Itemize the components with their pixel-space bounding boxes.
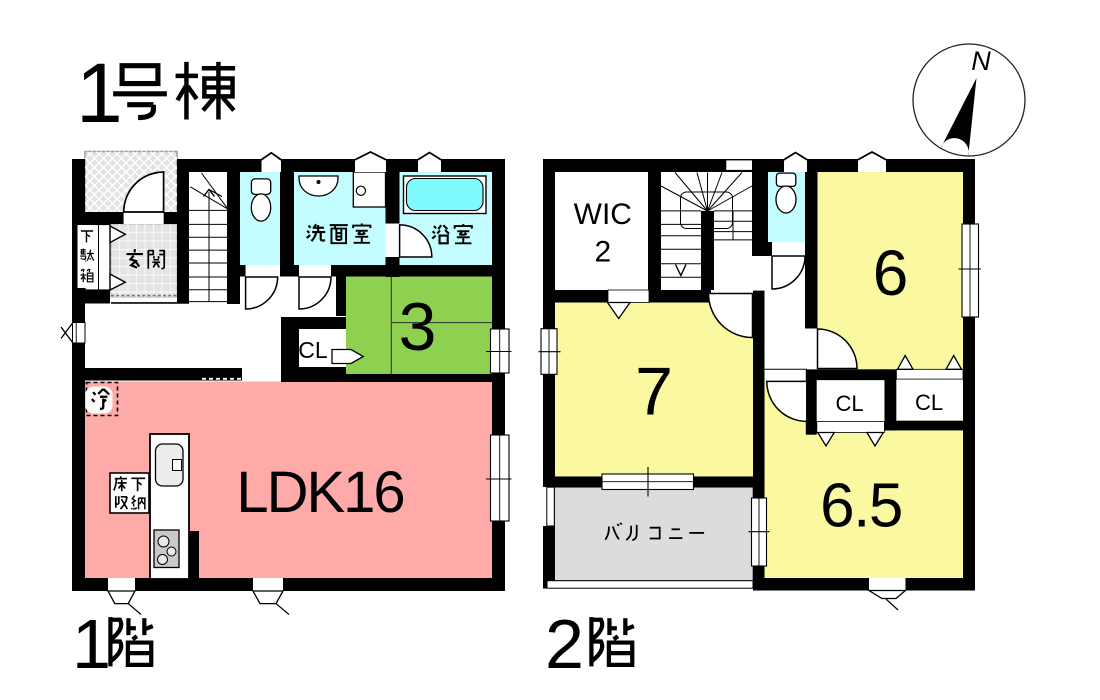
svg-text:CL: CL — [915, 390, 943, 415]
svg-text:1: 1 — [72, 605, 111, 683]
svg-text:CL: CL — [298, 337, 328, 363]
svg-text:3: 3 — [399, 289, 437, 365]
svg-text:CL: CL — [835, 391, 863, 416]
svg-text:6: 6 — [873, 237, 909, 309]
svg-text:2: 2 — [545, 605, 584, 683]
svg-text:6.5: 6.5 — [820, 472, 902, 541]
svg-text:2: 2 — [594, 236, 611, 269]
svg-text:7: 7 — [635, 354, 673, 430]
svg-text:LDK16: LDK16 — [236, 460, 403, 525]
svg-text:WIC: WIC — [574, 198, 632, 231]
svg-text:N: N — [971, 46, 991, 76]
